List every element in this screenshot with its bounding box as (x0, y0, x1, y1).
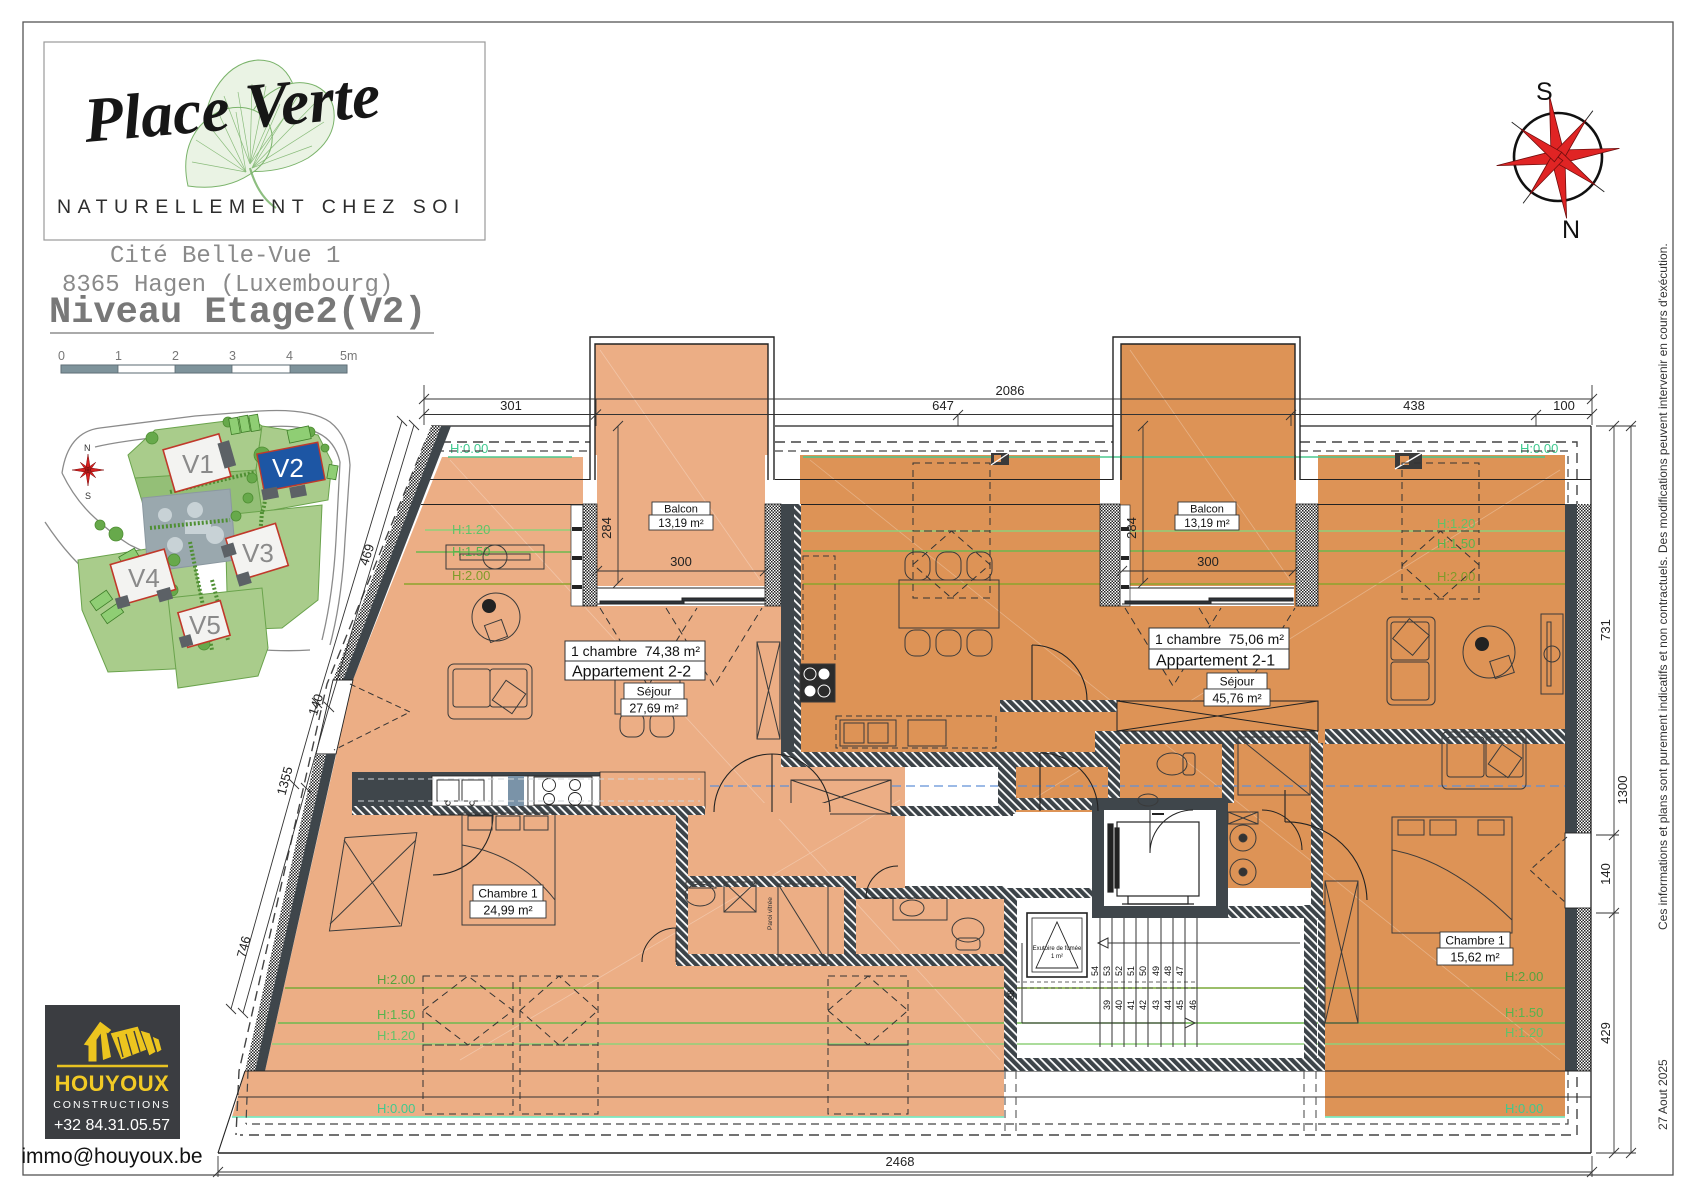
svg-text:27 Aout 2025: 27 Aout 2025 (1656, 1059, 1670, 1130)
svg-text:27,69 m²: 27,69 m² (629, 702, 678, 716)
svg-text:42: 42 (1138, 1000, 1148, 1010)
svg-text:Appartement 2-2: Appartement 2-2 (572, 664, 691, 681)
svg-text:V4: V4 (128, 563, 160, 593)
svg-text:2: 2 (172, 349, 179, 363)
svg-text:45: 45 (1175, 1000, 1185, 1010)
svg-text:45,76 m²: 45,76 m² (1212, 692, 1261, 706)
svg-text:52: 52 (1114, 966, 1124, 976)
svg-text:H:1.20: H:1.20 (1505, 1025, 1543, 1040)
svg-text:S: S (1536, 78, 1553, 106)
svg-text:H:2.00: H:2.00 (1505, 969, 1543, 984)
svg-text:38: 38 (1006, 990, 1016, 1000)
svg-text:140: 140 (1598, 863, 1613, 885)
svg-text:Appartement 2-1: Appartement 2-1 (1156, 653, 1275, 670)
svg-text:2468: 2468 (886, 1154, 915, 1169)
svg-text:44: 44 (1163, 1000, 1173, 1010)
svg-text:100: 100 (1553, 398, 1575, 413)
svg-text:13,19 m²: 13,19 m² (658, 518, 704, 530)
svg-text:1 chambre: 1 chambre (1155, 631, 1221, 647)
svg-text:647: 647 (932, 398, 954, 413)
svg-text:N: N (84, 443, 91, 453)
svg-text:74,38 m²: 74,38 m² (645, 643, 701, 659)
svg-text:H:0.00: H:0.00 (450, 441, 488, 456)
svg-text:43: 43 (1151, 1000, 1161, 1010)
svg-text:41: 41 (1126, 1000, 1136, 1010)
svg-text:H:1.50: H:1.50 (1505, 1005, 1543, 1020)
svg-text:4: 4 (286, 349, 293, 363)
svg-text:H:1.20: H:1.20 (377, 1028, 415, 1043)
svg-text:H:1.20: H:1.20 (452, 522, 490, 537)
svg-text:1300: 1300 (1615, 776, 1630, 805)
svg-text:Balcon: Balcon (1190, 504, 1224, 516)
svg-text:731: 731 (1598, 619, 1613, 641)
svg-text:75,06 m²: 75,06 m² (1229, 631, 1285, 647)
svg-text:HOUYOUX: HOUYOUX (55, 1071, 170, 1096)
svg-text:438: 438 (1403, 398, 1425, 413)
svg-text:13,19 m²: 13,19 m² (1184, 518, 1230, 530)
svg-text:Ces informations et plans sont: Ces informations et plans sont purement … (1656, 243, 1670, 930)
svg-text:N: N (1562, 216, 1580, 244)
svg-text:50: 50 (1138, 966, 1148, 976)
svg-text:3: 3 (229, 349, 236, 363)
svg-text:49: 49 (1151, 966, 1161, 976)
svg-text:0: 0 (58, 349, 65, 363)
svg-text:Balcon: Balcon (664, 504, 698, 516)
svg-text:H:1.50: H:1.50 (1437, 536, 1475, 551)
svg-text:5m: 5m (340, 349, 357, 363)
svg-text:51: 51 (1126, 966, 1136, 976)
svg-text:1 m²: 1 m² (1051, 954, 1063, 960)
svg-text:NATURELLEMENT CHEZ SOI: NATURELLEMENT CHEZ SOI (57, 196, 466, 218)
svg-text:H:1.50: H:1.50 (377, 1007, 415, 1022)
svg-text:48: 48 (1163, 966, 1173, 976)
svg-text:53: 53 (1102, 966, 1112, 976)
svg-text:V1: V1 (182, 449, 214, 479)
svg-text:Séjour: Séjour (637, 685, 672, 699)
svg-text:S: S (85, 491, 91, 501)
svg-text:301: 301 (500, 398, 522, 413)
svg-text:Chambre 1: Chambre 1 (478, 887, 538, 901)
svg-text:V2: V2 (272, 453, 304, 483)
svg-text:1 chambre: 1 chambre (571, 643, 637, 659)
svg-text:39: 39 (1102, 1000, 1112, 1010)
svg-text:47: 47 (1175, 966, 1185, 976)
svg-text:40: 40 (1114, 1000, 1124, 1010)
svg-text:24,99 m²: 24,99 m² (483, 904, 532, 918)
svg-text:429: 429 (1598, 1022, 1613, 1044)
svg-text:H:0.00: H:0.00 (377, 1101, 415, 1116)
svg-text:300: 300 (1197, 554, 1219, 569)
svg-text:15,62 m²: 15,62 m² (1450, 951, 1499, 965)
svg-text:CONSTRUCTIONS: CONSTRUCTIONS (53, 1099, 171, 1111)
svg-text:H:2.00: H:2.00 (452, 568, 490, 583)
svg-text:H:0.00: H:0.00 (1520, 441, 1558, 456)
svg-text:Niveau Etage2(V2): Niveau Etage2(V2) (49, 292, 426, 334)
svg-text:2086: 2086 (996, 383, 1025, 398)
svg-text:284: 284 (599, 517, 614, 539)
svg-text:1: 1 (115, 349, 122, 363)
svg-text:54: 54 (1090, 966, 1100, 976)
svg-text:immo@houyoux.be: immo@houyoux.be (21, 1145, 202, 1168)
svg-text:Chambre 1: Chambre 1 (1445, 934, 1505, 948)
svg-text:V5: V5 (189, 610, 221, 640)
svg-text:300: 300 (670, 554, 692, 569)
svg-text:H:2.00: H:2.00 (377, 972, 415, 987)
svg-text:Exutoire de fumée: Exutoire de fumée (1033, 946, 1082, 952)
svg-text:+32 84.31.05.57: +32 84.31.05.57 (54, 1117, 170, 1134)
svg-text:H:0.00: H:0.00 (1505, 1101, 1543, 1116)
svg-text:Séjour: Séjour (1220, 675, 1255, 689)
svg-text:V3: V3 (242, 538, 274, 568)
svg-text:Paroi vitrée: Paroi vitrée (767, 897, 774, 930)
svg-text:284: 284 (1124, 517, 1139, 539)
svg-text:H:1.20: H:1.20 (1437, 516, 1475, 531)
svg-text:Cité Belle-Vue 1: Cité Belle-Vue 1 (110, 243, 340, 270)
svg-text:H:2.00: H:2.00 (1437, 569, 1475, 584)
svg-text:46: 46 (1188, 1000, 1198, 1010)
